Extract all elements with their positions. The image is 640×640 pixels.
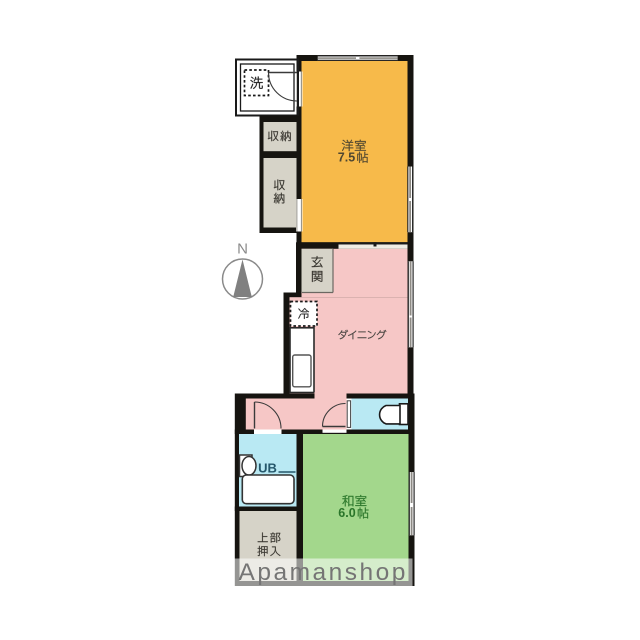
svg-text:6.0: 6.0 — [338, 506, 355, 520]
svg-text:Apamanshop: Apamanshop — [239, 559, 408, 586]
svg-text:UB: UB — [258, 461, 277, 476]
svg-text:7.5: 7.5 — [338, 150, 355, 164]
svg-text:N: N — [237, 241, 248, 258]
